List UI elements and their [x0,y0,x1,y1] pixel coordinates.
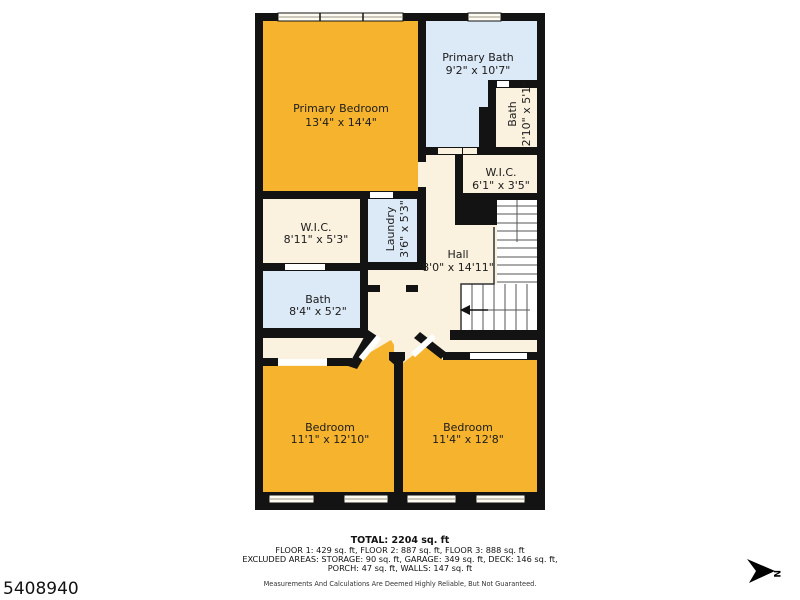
room-bedroom-right [403,343,537,492]
floorplan-page: Primary Bedroom 13'4" x 14'4" Primary Ba… [0,0,800,600]
room-dims-bedroom-right: 11'4" x 12'8" [432,433,504,446]
room-dims-primary-bath: 9'2" x 10'7" [446,64,511,77]
listing-id: 5408940 [3,579,79,599]
room-label-hall: Hall [447,248,468,261]
room-dims-bath-lower: 8'4" x 5'2" [289,305,347,318]
room-label-laundry: Laundry [384,206,397,251]
room-dims-bedroom-left: 11'1" x 12'10" [291,433,370,446]
room-dims-laundry: 3'6" x 5'3" [398,200,411,258]
area-summary: TOTAL: 2204 sq. ft FLOOR 1: 429 sq. ft, … [242,535,557,588]
door-primary-bath [438,148,462,154]
room-label-bath-upper: Bath [506,101,519,127]
floorplan-canvas: Primary Bedroom 13'4" x 14'4" Primary Ba… [0,0,800,600]
room-label-primary-bedroom: Primary Bedroom [293,102,389,115]
room-dims-wic-large: 8'11" x 5'3" [284,233,349,246]
excluded-areas-line2: PORCH: 47 sq. ft, WALLS: 147 sq. ft [328,563,473,573]
north-arrow-icon: N [747,559,781,583]
door-wic-large [285,264,325,270]
room-label-primary-bath: Primary Bath [442,51,514,64]
north-label: N [771,570,781,578]
door-bath-upper [497,81,509,87]
room-dims-primary-bedroom: 13'4" x 14'4" [305,116,377,129]
room-label-wic-small: W.I.C. [485,166,516,179]
door-bedroom-right [470,353,527,359]
disclaimer: Measurements And Calculations Are Deemed… [264,580,537,588]
room-dims-wic-small: 6'1" x 3'5" [472,179,530,192]
door-wic-small [463,148,477,154]
room-dims-hall: 8'0" x 14'11" [422,261,494,274]
door-primary-bedroom [418,162,426,187]
door-laundry [370,192,393,198]
door-bedroom-left [278,359,327,365]
north-arrow-shape [747,559,775,583]
room-dims-bath-upper: 2'10" x 5'1" [520,82,533,147]
